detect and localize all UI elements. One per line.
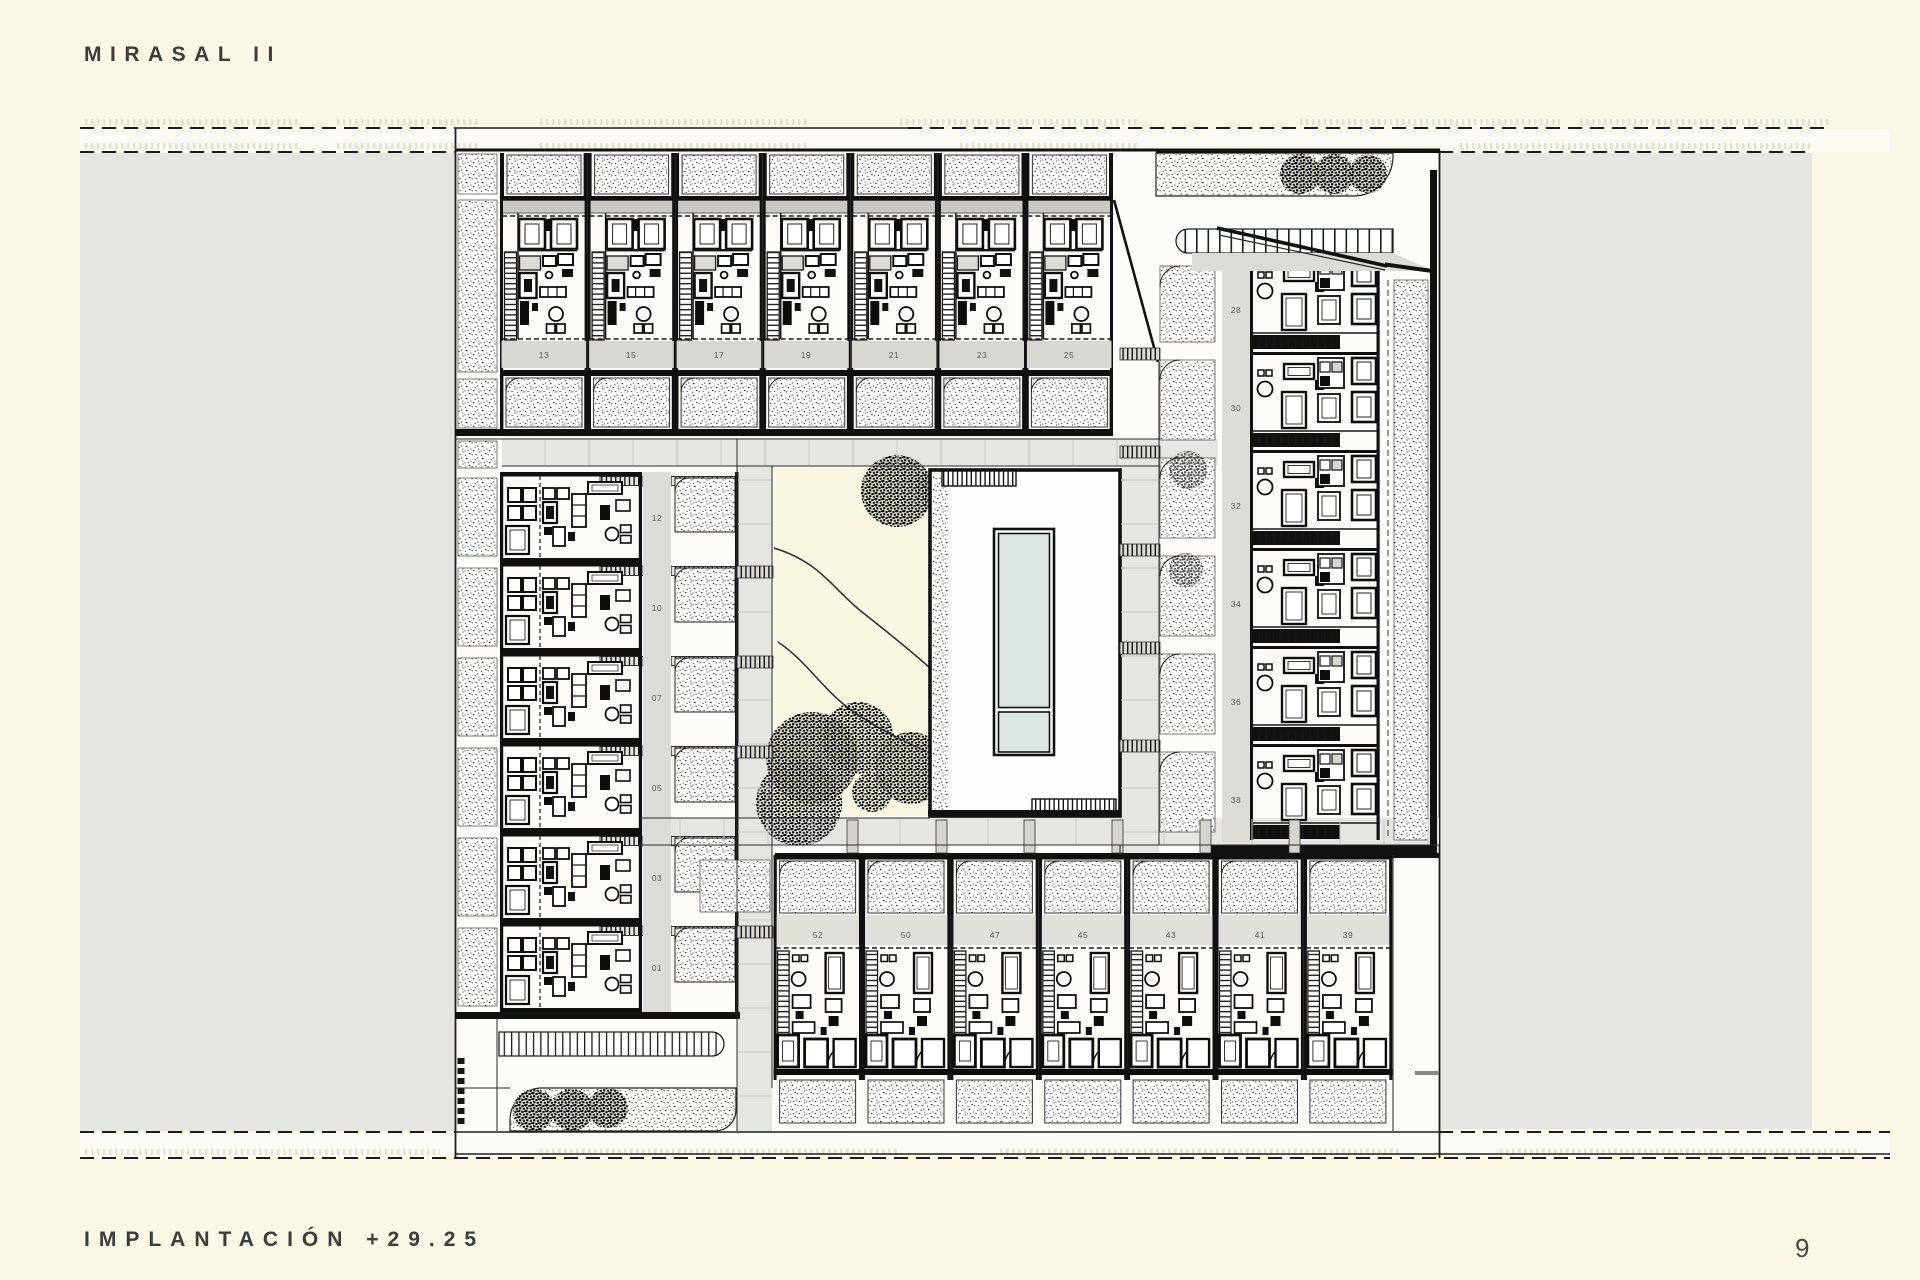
svg-text:41: 41 [1255, 930, 1265, 940]
svg-text:21: 21 [889, 350, 899, 360]
svg-text:13: 13 [539, 350, 549, 360]
svg-text:03: 03 [652, 873, 662, 883]
svg-text:32: 32 [1231, 501, 1241, 511]
svg-text:52: 52 [813, 930, 823, 940]
svg-text:15: 15 [626, 350, 636, 360]
svg-text:05: 05 [652, 783, 662, 793]
svg-text:25: 25 [1064, 350, 1074, 360]
svg-text:28: 28 [1231, 305, 1241, 315]
svg-text:38: 38 [1231, 795, 1241, 805]
svg-text:9: 9 [1795, 1233, 1809, 1263]
svg-text:30: 30 [1231, 403, 1241, 413]
svg-text:23: 23 [977, 350, 987, 360]
svg-text:36: 36 [1231, 697, 1241, 707]
svg-text:01: 01 [652, 963, 662, 973]
svg-text:IMPLANTACIÓN +29.25: IMPLANTACIÓN +29.25 [84, 1227, 485, 1251]
svg-text:07: 07 [652, 693, 662, 703]
svg-text:47: 47 [990, 930, 1000, 940]
svg-text:12: 12 [652, 513, 662, 523]
svg-text:17: 17 [714, 350, 724, 360]
svg-text:19: 19 [801, 350, 811, 360]
svg-text:39: 39 [1343, 930, 1353, 940]
svg-text:45: 45 [1078, 930, 1088, 940]
svg-text:MIRASAL II: MIRASAL II [84, 43, 282, 66]
svg-text:34: 34 [1231, 599, 1241, 609]
svg-text:43: 43 [1166, 930, 1176, 940]
svg-text:50: 50 [901, 930, 911, 940]
svg-text:10: 10 [652, 603, 662, 613]
